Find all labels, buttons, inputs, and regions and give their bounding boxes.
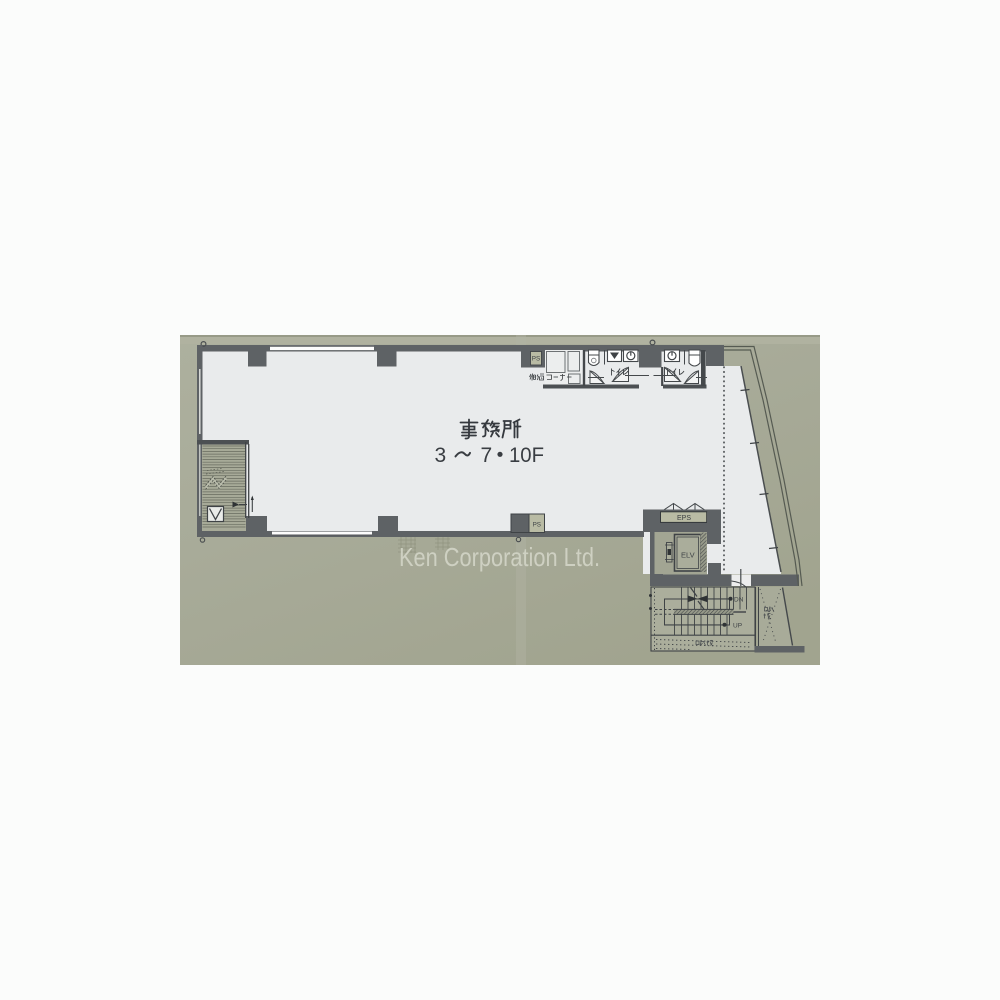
svg-text:3: 3 [435,444,447,467]
svg-text:10F: 10F [509,444,544,467]
svg-text:UP: UP [733,623,742,630]
svg-text:ELV: ELV [681,551,695,560]
svg-text:Ken Corporation Ltd.: Ken Corporation Ltd. [399,542,600,572]
svg-text:PS: PS [532,356,540,363]
svg-text:DN: DN [734,597,744,604]
svg-text:EPS: EPS [677,515,691,522]
svg-text:7: 7 [481,444,493,467]
svg-text:PS: PS [533,522,541,529]
